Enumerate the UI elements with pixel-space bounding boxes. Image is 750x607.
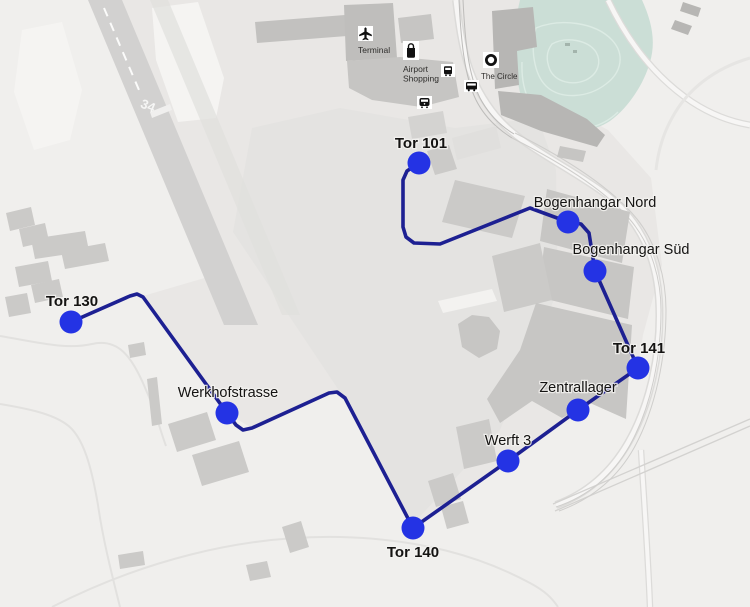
stop-label-bogenhangar-nord: Bogenhangar Nord [534,195,657,211]
airplane-icon [358,26,373,41]
airport-shopping-label-line1: Airport [403,64,429,74]
stop-marker-bogenhangar-nord[interactable] [557,211,580,234]
stop-label-bogenhangar-süd: Bogenhangar Süd [573,242,690,258]
stop-marker-werft-3[interactable] [497,450,520,473]
stop-marker-zentrallager[interactable] [567,399,590,422]
train-icon [417,96,432,109]
airport-shopping-label-line2: Shopping [403,74,439,84]
stop-marker-werkhofstrasse[interactable] [216,402,239,425]
map-canvas[interactable]: 34 [0,0,750,607]
bus-icon [464,80,479,92]
shopping-bag-icon [403,41,419,60]
the-circle-label: The Circle [481,72,518,81]
stop-label-tor-130: Tor 130 [46,293,98,310]
terminal-label: Terminal [358,45,390,55]
stop-label-tor-140: Tor 140 [387,544,439,561]
circle-icon [483,52,499,68]
stop-marker-tor-140[interactable] [402,517,425,540]
stop-label-werkhofstrasse: Werkhofstrasse [178,385,278,401]
stop-label-zentrallager: Zentrallager [539,380,617,396]
stop-marker-tor-130[interactable] [60,311,83,334]
stop-label-tor-141: Tor 141 [613,340,665,357]
stop-marker-bogenhangar-süd[interactable] [584,260,607,283]
stop-marker-tor-101[interactable] [408,152,431,175]
stop-label-werft-3: Werft 3 [485,433,531,449]
stop-marker-tor-141[interactable] [627,357,650,380]
tram-icon [441,64,455,77]
stop-label-tor-101: Tor 101 [395,135,447,152]
